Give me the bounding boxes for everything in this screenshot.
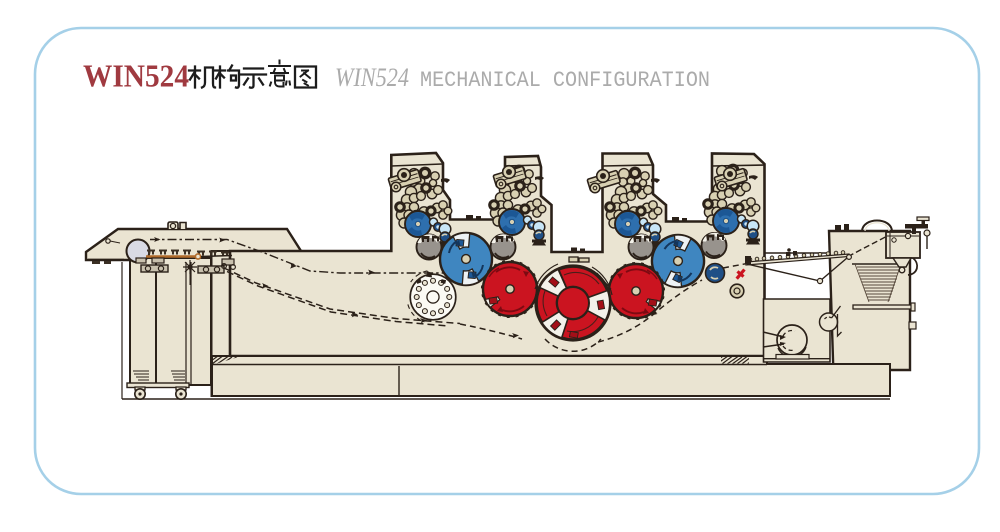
svg-text:WIN524: WIN524 — [335, 63, 409, 92]
svg-text:WIN524: WIN524 — [83, 58, 189, 94]
svg-text:MECHANICAL CONFIGURATION: MECHANICAL CONFIGURATION — [420, 68, 710, 93]
